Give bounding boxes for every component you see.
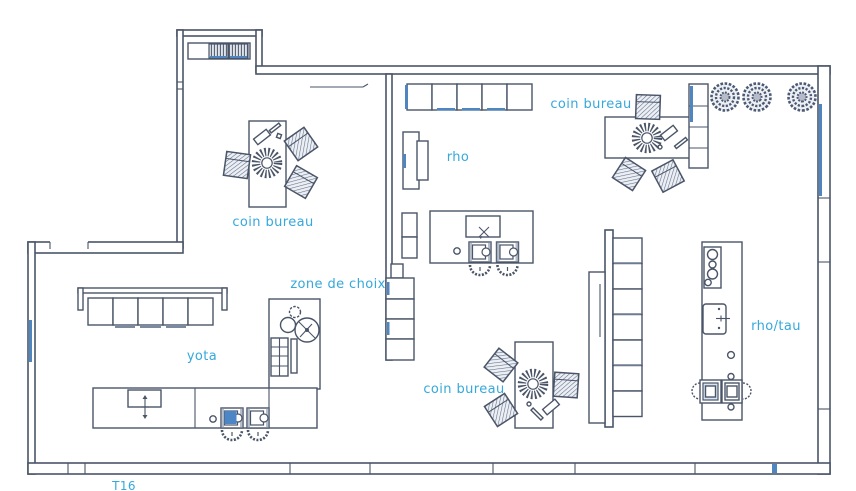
label-yota: yota — [187, 349, 217, 364]
tray — [466, 216, 500, 237]
chair-icon — [284, 127, 317, 160]
label-zone-de-choix: zone de choix — [290, 277, 385, 292]
wall-top-left-room — [177, 30, 262, 36]
label-rho: rho — [447, 150, 470, 165]
partition-cabinets — [589, 238, 642, 423]
wall-top-main — [256, 66, 830, 74]
ledge-end — [363, 84, 368, 87]
sink-blue-fill — [225, 411, 237, 424]
label-coin-bureau-bottom: coin bureau — [423, 382, 504, 397]
wall-left-upper — [177, 30, 183, 248]
room-rho: rho — [386, 84, 533, 360]
cabinet-strip — [689, 84, 708, 168]
sink-icon — [247, 408, 269, 428]
stool-icon — [222, 430, 242, 440]
island-counter — [430, 211, 533, 275]
wall-bottom — [28, 463, 830, 474]
cabinet-row — [405, 84, 532, 111]
wall-screen — [589, 272, 605, 423]
room-coin-bureau-bottom: coin bureau — [423, 342, 578, 428]
wall-partition-right — [605, 230, 613, 427]
chair-icon — [484, 393, 517, 426]
label-coin-bureau-top-left: coin bureau — [232, 215, 313, 230]
chair-icon — [652, 160, 684, 192]
panel — [291, 339, 297, 373]
window-glass-right — [819, 104, 822, 196]
window-glass-left — [29, 320, 32, 362]
plant-icon — [738, 78, 776, 116]
stool-icon — [470, 265, 490, 275]
label-rho-tau: rho/tau — [751, 319, 801, 334]
appliance-icon — [229, 44, 248, 58]
chair-icon — [636, 95, 661, 120]
radial-ornament-icon — [256, 152, 278, 174]
appliance-accent — [210, 56, 227, 58]
window-glass-bottom — [772, 464, 777, 473]
hob-icon — [704, 247, 721, 288]
side-desk — [269, 299, 320, 389]
radial-ornament-icon — [522, 373, 544, 395]
chair-icon — [285, 166, 318, 199]
chair-icon — [553, 372, 579, 398]
appliance-icon — [209, 44, 228, 58]
sink-icon — [469, 242, 491, 262]
room-yota: yota zone de choix — [78, 277, 386, 440]
radial-ornament-icon — [636, 127, 658, 149]
label-coin-bureau-top-right: coin bureau — [550, 97, 631, 112]
wall-notch — [50, 241, 88, 248]
ladder-shelf — [271, 338, 288, 376]
wardrobe — [403, 132, 428, 189]
stool-icon — [498, 265, 518, 275]
cabinet-door — [703, 304, 730, 334]
room-coin-bureau-top-right: coin bureau — [550, 78, 817, 192]
plant-icon — [712, 84, 739, 111]
chair-icon — [484, 348, 518, 382]
sink-icon — [497, 242, 519, 262]
chair-icon — [223, 151, 250, 178]
counter — [93, 388, 317, 440]
room-rho-tau: rho/tau — [692, 242, 801, 420]
floor-plan-canvas: coin bureau — [0, 0, 856, 491]
floor-plan-page: coin bureau — [0, 0, 856, 491]
label-t16: T16 — [111, 479, 136, 491]
stool-icon — [248, 430, 268, 440]
chair-icon — [612, 157, 645, 190]
appliance-accent — [230, 56, 247, 58]
wall-shelf — [78, 288, 227, 328]
plant-icon — [786, 81, 817, 112]
